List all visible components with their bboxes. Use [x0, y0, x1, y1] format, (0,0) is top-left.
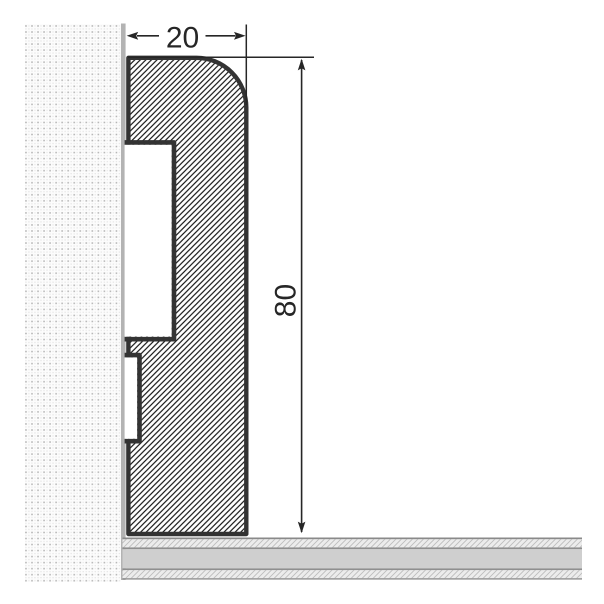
- svg-text:80: 80: [270, 284, 303, 317]
- svg-text:20: 20: [166, 22, 199, 55]
